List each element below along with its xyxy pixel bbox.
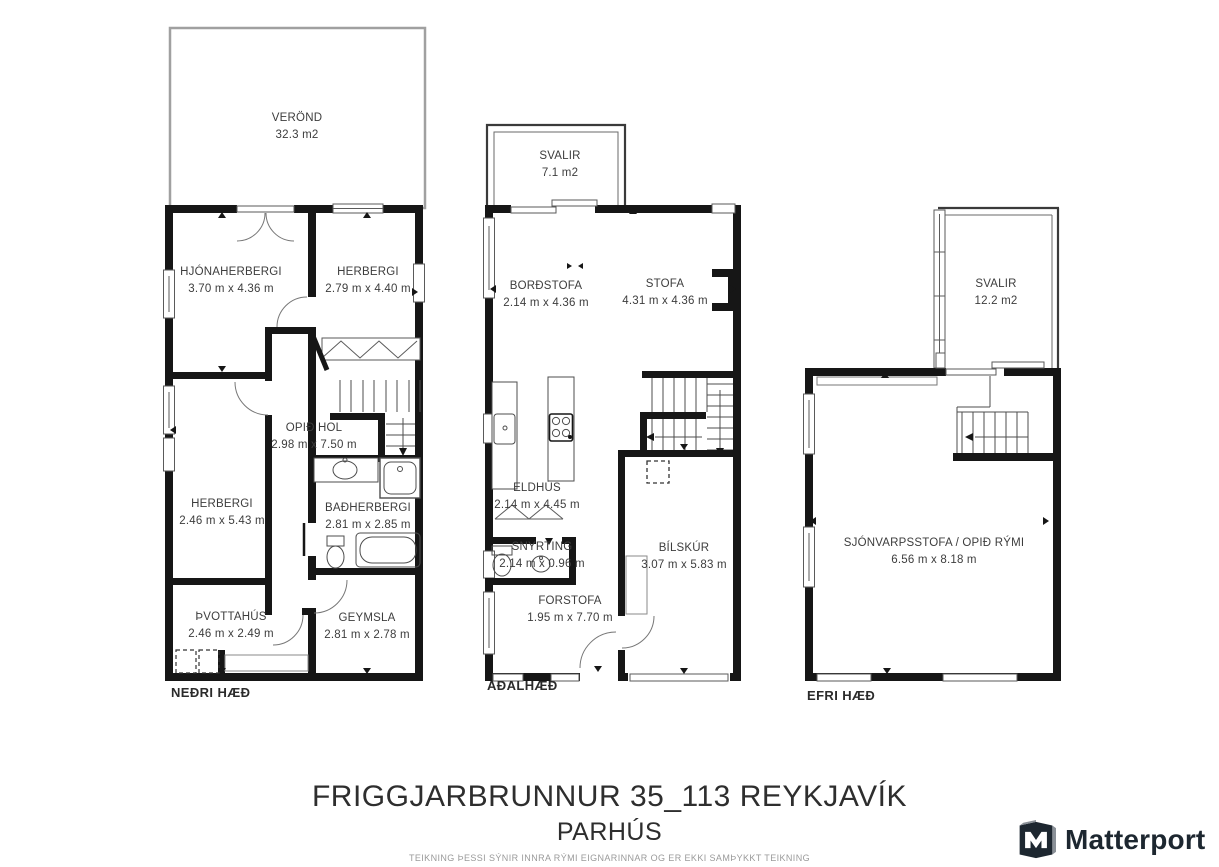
upper-floor-drawing: [804, 208, 1062, 681]
room-label-herbergi-top: HERBERGI 2.79 m x 4.40 m: [325, 264, 410, 298]
room-label-herbergi-lower: HERBERGI 2.46 m x 5.43 m: [179, 496, 264, 530]
room-dims: 12.2 m2: [975, 293, 1018, 310]
room-label-snyrting: SNYRTING 2.14 m x 0.96 m: [499, 539, 584, 573]
room-name: SVALIR: [539, 148, 580, 165]
room-dims: 2.14 m x 0.96 m: [499, 556, 584, 573]
matterport-logo-icon: [1016, 820, 1056, 860]
room-name: ÞVOTTAHÚS: [188, 609, 273, 626]
floor-label-adalhaed: AÐALHÆÐ: [487, 678, 558, 693]
room-dims: 2.46 m x 5.43 m: [179, 513, 264, 530]
room-label-bilskur: BÍLSKÚR 3.07 m x 5.83 m: [641, 540, 726, 574]
room-name: HERBERGI: [325, 264, 410, 281]
room-dims: 2.46 m x 2.49 m: [188, 626, 273, 643]
room-label-svalir-upper: SVALIR 12.2 m2: [975, 276, 1018, 310]
floor-label-nedri-haed: NEÐRI HÆÐ: [171, 685, 250, 700]
matterport-logo: Matterport: [1016, 820, 1205, 860]
room-label-forstofa: FORSTOFA 1.95 m x 7.70 m: [527, 593, 612, 627]
room-dims: 2.98 m x 7.50 m: [271, 437, 356, 454]
room-dims: 6.56 m x 8.18 m: [844, 552, 1025, 569]
room-dims: 2.14 m x 4.36 m: [503, 295, 588, 312]
room-name: BORÐSTOFA: [503, 278, 588, 295]
room-name: HERBERGI: [179, 496, 264, 513]
room-dims: 2.79 m x 4.40 m: [325, 281, 410, 298]
room-name: GEYMSLA: [324, 610, 409, 627]
matterport-logo-text: Matterport: [1065, 824, 1205, 856]
room-dims: 3.70 m x 4.36 m: [180, 281, 282, 298]
room-name: OPIÐ HOL: [271, 420, 356, 437]
room-label-sjonvarpsstofa: SJÓNVARPSSTOFA / OPIÐ RÝMI 6.56 m x 8.18…: [844, 535, 1025, 569]
room-dims: 7.1 m2: [539, 165, 580, 182]
room-label-eldhus: ELDHÚS 2.14 m x 4.45 m: [494, 480, 579, 514]
room-name: BÍLSKÚR: [641, 540, 726, 557]
room-name: SJÓNVARPSSTOFA / OPIÐ RÝMI: [844, 535, 1025, 552]
room-name: SVALIR: [975, 276, 1018, 293]
floor-plan-drawing: [0, 0, 1219, 867]
room-name: STOFA: [622, 276, 707, 293]
room-label-opid-hol: OPIÐ HOL 2.98 m x 7.50 m: [271, 420, 356, 454]
room-name: HJÓNAHERBERGI: [180, 264, 282, 281]
room-name: ELDHÚS: [494, 480, 579, 497]
room-label-svalir-main: SVALIR 7.1 m2: [539, 148, 580, 182]
address-title: FRIGGJARBRUNNUR 35_113 REYKJAVÍK: [0, 780, 1219, 814]
room-dims: 2.81 m x 2.85 m: [325, 517, 411, 534]
floor-label-efri-haed: EFRI HÆÐ: [807, 688, 875, 703]
room-dims: 2.81 m x 2.78 m: [324, 627, 409, 644]
room-label-geymsla: GEYMSLA 2.81 m x 2.78 m: [324, 610, 409, 644]
room-dims: 3.07 m x 5.83 m: [641, 557, 726, 574]
room-dims: 2.14 m x 4.45 m: [494, 497, 579, 514]
floor-plan-page: VERÖND 32.3 m2 HJÓNAHERBERGI 3.70 m x 4.…: [0, 0, 1219, 867]
room-label-stofa: STOFA 4.31 m x 4.36 m: [622, 276, 707, 310]
room-label-badherbergi: BAÐHERBERGI 2.81 m x 2.85 m: [325, 500, 411, 534]
room-name: BAÐHERBERGI: [325, 500, 411, 517]
room-label-verond: VERÖND 32.3 m2: [272, 110, 322, 144]
room-name: VERÖND: [272, 110, 322, 127]
room-name: SNYRTING: [499, 539, 584, 556]
room-label-bordstofa: BORÐSTOFA 2.14 m x 4.36 m: [503, 278, 588, 312]
room-dims: 4.31 m x 4.36 m: [622, 293, 707, 310]
room-name: FORSTOFA: [527, 593, 612, 610]
room-dims: 32.3 m2: [272, 127, 322, 144]
room-dims: 1.95 m x 7.70 m: [527, 610, 612, 627]
room-label-thvottahus: ÞVOTTAHÚS 2.46 m x 2.49 m: [188, 609, 273, 643]
room-label-hjonaherbergi: HJÓNAHERBERGI 3.70 m x 4.36 m: [180, 264, 282, 298]
